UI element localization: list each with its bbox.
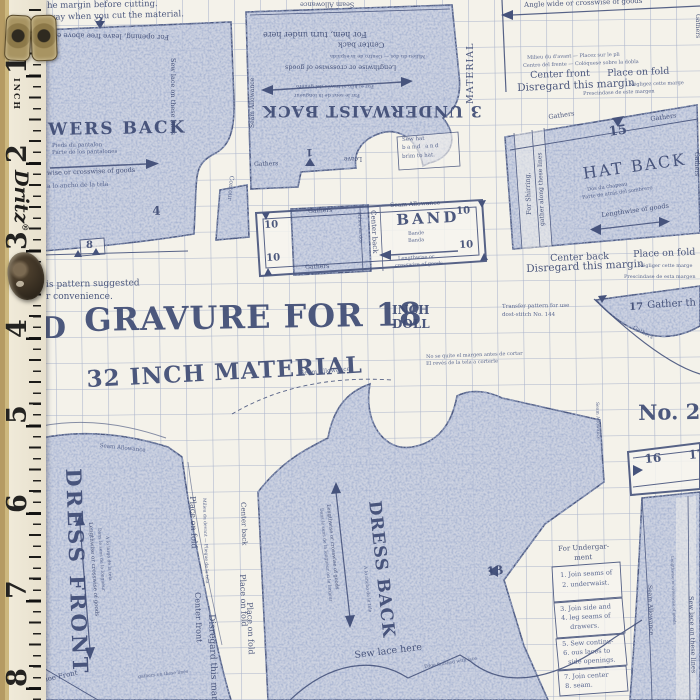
underwaist-center-back: Center back <box>338 41 384 49</box>
underwaist-center-back-intl: Milieu du dos — Centro de la espalda <box>330 53 425 58</box>
band-es: Banda <box>408 238 424 244</box>
fold-mid-fr: Négliger cette marge <box>638 264 692 269</box>
transfer-note-line1: Transfer pattern for use <box>502 304 569 311</box>
suggested-note-line1: is pattern suggested <box>46 279 140 290</box>
dritz-logo: Dritz® <box>11 170 30 231</box>
metal-end-tab <box>3 15 57 61</box>
headline-doll: DOLL <box>392 318 430 330</box>
cutting-note-line1: he margin before cutting. <box>47 0 158 10</box>
headline-inch: INCH <box>392 304 429 316</box>
drawers-sub-es: Parte de los pantalones <box>52 150 117 157</box>
instructions-heading-line2: ment <box>574 554 592 562</box>
gathers-vertical-topright: Gathers <box>694 14 700 38</box>
band-gathers-bottom: Gathers <box>305 264 329 271</box>
ruler-inch-label: INCH <box>13 78 21 111</box>
fold-mid-es: Prescindase de esta margen <box>624 275 696 280</box>
piece-number-13: 13 <box>486 564 504 578</box>
back-center-back: Center back <box>239 502 248 546</box>
gather17-number: 17 <box>629 303 643 313</box>
fabric-swatch-photo: he margin before cutting. s way when you… <box>0 0 700 700</box>
piece-label-band: BAND <box>396 210 460 228</box>
piece-label-dress-front: DRESS FRONT <box>63 468 91 676</box>
opening-note: For opening, leave free above edge <box>44 31 169 40</box>
piece-number-4: 4 <box>152 205 161 217</box>
piece-label-drawers-back: WERS BACK <box>48 120 187 139</box>
ruler-number: 4 <box>4 319 31 338</box>
piece-number-3: 3 <box>96 16 104 27</box>
no2-seam-vertical: Seam Allowance <box>594 402 600 440</box>
band-center-back-vertical: Center back <box>369 210 378 254</box>
ruler-number: 5 <box>4 405 31 424</box>
rightcol-seam-allowance: Seam Allowance <box>646 585 654 635</box>
drawers-sew-lace-vertical: Sew lace on these lines <box>170 58 177 135</box>
ruler-number: 6 <box>4 494 31 513</box>
metal-rivet-icon <box>4 14 32 61</box>
piece-number-17: 17 <box>688 448 700 461</box>
underwaist-seam-allowance: Seam Allowance <box>300 1 354 8</box>
band-fr: Bande <box>408 231 424 237</box>
band-gathers-top: Gathers <box>308 208 332 215</box>
underwaist-seam-allowance-vertical: Seam Allowance <box>250 78 256 128</box>
metal-rivet-icon <box>30 15 58 62</box>
front-place-on-fold: Place on fold <box>188 496 198 549</box>
underwaist-grain-fr: Par le sens de la longueur <box>294 92 360 97</box>
underwaist-hem-note: For hem, turn under here <box>263 30 367 38</box>
hat-note-line1: Sew hat <box>402 137 425 144</box>
transfer-note-line2: dost-stitch No. 144 <box>502 313 555 319</box>
rightcol-sew-lace: Sew lace on these lines <box>688 596 697 673</box>
underwaist-gathers: Gathers <box>254 161 278 168</box>
underwaist-grain: Lengthwise or crosswise of goods <box>285 64 396 71</box>
no2-label: No. 2 <box>638 401 700 423</box>
instruction-step: drawers. <box>570 622 599 630</box>
instruction-step: 8. seam. <box>565 682 593 690</box>
piece-number-8: 8 <box>86 241 93 251</box>
piece-number-15: 15 <box>608 123 628 138</box>
material-vertical-label: MATERIAL <box>466 43 476 104</box>
drawers-corner-label: Contour <box>226 175 234 200</box>
registered-mark: ® <box>20 223 30 231</box>
hat-gathers-vertical: Gathers <box>693 152 699 176</box>
band-center-back-fr-vertical: Milieu du dos <box>356 212 362 243</box>
band-num-topleft: 10 <box>264 220 278 231</box>
headline-title: GRAVURE FOR 18 <box>84 298 423 336</box>
piece-number-1: 1 <box>306 146 313 156</box>
back-place-on-fold: Place on fold <box>238 574 248 627</box>
ruler-number: 8 <box>4 668 31 687</box>
piece-number-16: 16 <box>644 452 662 465</box>
underwaist-leave: Leave <box>344 155 362 161</box>
band-num-bottomleft: 10 <box>266 253 280 264</box>
hat-shirring-line1: For Shirring, <box>525 172 533 215</box>
front-center-front: Center front <box>193 592 203 643</box>
ruler-number: 7 <box>4 580 31 599</box>
band-num-right: 10 <box>459 240 473 251</box>
ruler-number: 2 <box>4 144 31 163</box>
underwaist-grain-es: Por el hilo al través del género <box>296 83 374 88</box>
ruler-number: 3 <box>4 231 31 250</box>
piece-label-underwaist-back: 3 UNDERWAIST BACK <box>262 103 482 119</box>
measuring-tape: 1 2 3 4 5 6 7 8 INCH Dritz® <box>0 0 46 700</box>
